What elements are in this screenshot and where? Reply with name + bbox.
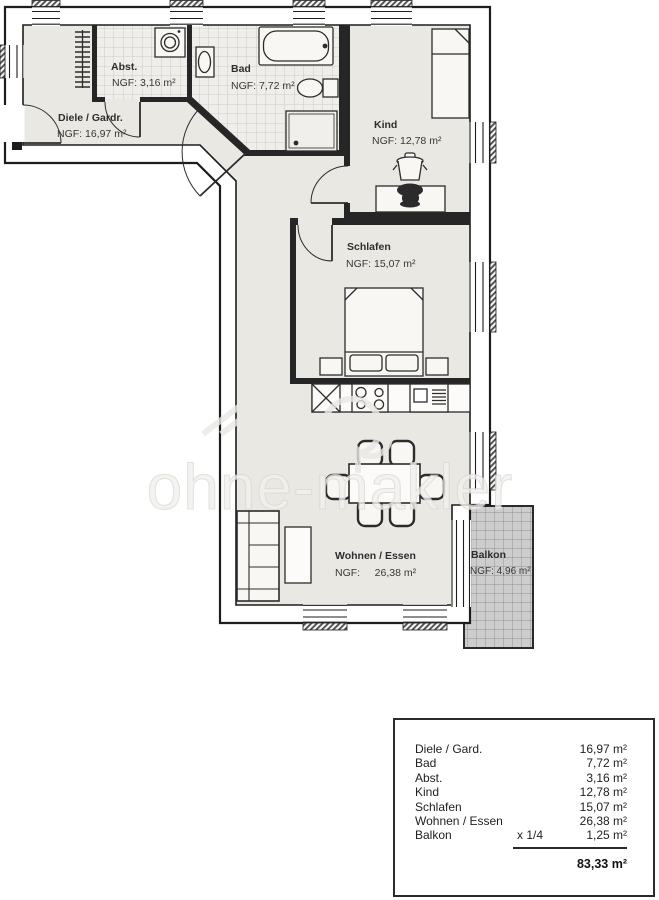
oven: [410, 384, 448, 412]
label-wohnen-ngf: NGF: 26,38 m²: [335, 567, 417, 579]
label-schlafen: Schlafen: [347, 241, 391, 253]
window-left: [0, 45, 24, 78]
label-kind: Kind: [374, 119, 397, 131]
legend-total-separator: [513, 847, 627, 849]
area-legend-box: Diele / Gard. 16,97 m² Bad 7,72 m² Abst.…: [393, 718, 655, 897]
label-schlafen-ngf: NGF: 15,07 m²: [346, 258, 416, 270]
label-balkon: Balkon: [471, 549, 506, 561]
window-top-2: [170, 1, 203, 27]
watermark-brand-text: ohne-makler: [147, 451, 514, 523]
floor-plan: Diele / Gardr. NGF: 16,97 m² Abst. NGF: …: [0, 0, 659, 700]
floor-plan-page: Diele / Gardr. NGF: 16,97 m² Abst. NGF: …: [0, 0, 659, 900]
shower: [286, 111, 337, 151]
entrance-opening: [4, 105, 25, 142]
window-schlafen: [469, 262, 496, 332]
window-kind: [469, 122, 496, 163]
washbasin: [196, 47, 214, 77]
window-top-1: [32, 1, 60, 27]
window-bottom-1: [303, 604, 347, 630]
washing-machine: [155, 28, 185, 57]
legend-row: Diele / Gard. 16,97 m²: [415, 742, 627, 756]
label-kind-ngf: NGF: 12,78 m²: [372, 135, 442, 147]
window-bottom-2: [403, 604, 447, 630]
bathtub: [259, 27, 333, 65]
legend-row: Schlafen 15,07 m²: [415, 800, 627, 814]
legend-row: Bad 7,72 m²: [415, 756, 627, 770]
bed-double: [345, 288, 423, 376]
label-bad-ngf: NGF: 7,72 m²: [231, 80, 295, 92]
balcony-door: [451, 520, 471, 607]
toilet: [298, 79, 339, 97]
legend-row: Kind 12,78 m²: [415, 785, 627, 799]
nightstand-right: [426, 358, 448, 375]
balcony: [464, 506, 533, 648]
legend-row: Abst. 3,16 m²: [415, 771, 627, 785]
label-abst-ngf: NGF: 3,16 m²: [112, 77, 176, 89]
sofa: [237, 511, 279, 601]
label-bad: Bad: [231, 63, 251, 75]
window-top-3: [293, 1, 325, 27]
legend-row: Balkon x 1/4 1,25 m²: [415, 828, 627, 842]
nightstand-left: [320, 358, 342, 375]
legend-total: 83,33 m²: [415, 857, 627, 871]
label-diele-ngf: NGF: 16,97 m²: [57, 128, 127, 140]
label-abst: Abst.: [111, 61, 137, 73]
bed-single: [432, 29, 469, 118]
legend-row: Wohnen / Essen 26,38 m²: [415, 814, 627, 828]
label-wohnen: Wohnen / Essen: [335, 550, 416, 562]
coffee-table: [285, 527, 311, 583]
label-diele: Diele / Gardr.: [58, 112, 123, 124]
label-balkon-ngf: NGF: 4,96 m²: [470, 566, 531, 577]
window-top-4: [371, 1, 412, 27]
